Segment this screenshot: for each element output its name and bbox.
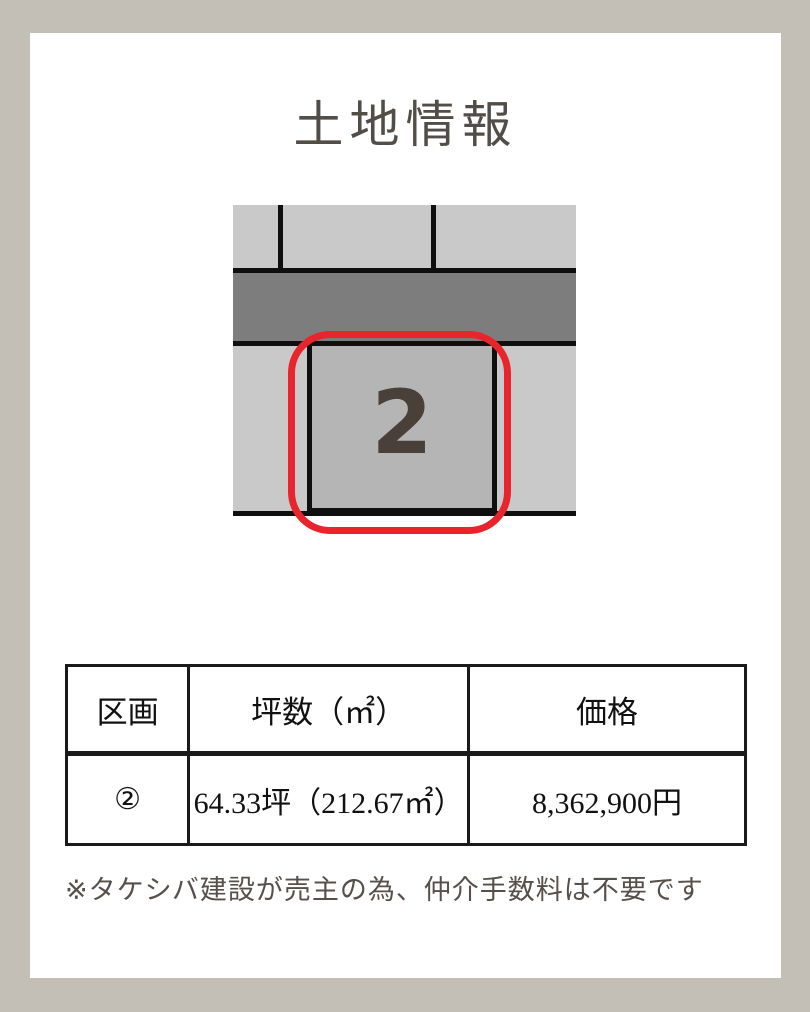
land-info-card: 土地情報 2 区画 坪数（㎡） 価格 ② 64.33坪（212.67㎡） <box>30 33 781 978</box>
cell-section: ② <box>67 754 189 845</box>
header-section: 区画 <box>67 666 189 754</box>
plot-boundary-line-left <box>278 205 283 268</box>
footnote: ※タケシバ建設が売主の為、仲介手数料は不要です <box>65 868 755 907</box>
page-title: 土地情報 <box>30 85 781 157</box>
cell-price: 8,362,900円 <box>468 754 745 845</box>
table-data-row: ② 64.33坪（212.67㎡） 8,362,900円 <box>67 754 746 845</box>
highlight-ring <box>288 331 511 534</box>
header-area: 坪数（㎡） <box>189 666 469 754</box>
cell-area: 64.33坪（212.67㎡） <box>189 754 469 845</box>
plot-map: 2 <box>233 205 576 516</box>
land-info-table: 区画 坪数（㎡） 価格 ② 64.33坪（212.67㎡） 8,362,900円 <box>65 664 747 846</box>
header-price: 価格 <box>468 666 745 754</box>
table-header-row: 区画 坪数（㎡） 価格 <box>67 666 746 754</box>
plot-boundary-line-right <box>431 205 436 268</box>
